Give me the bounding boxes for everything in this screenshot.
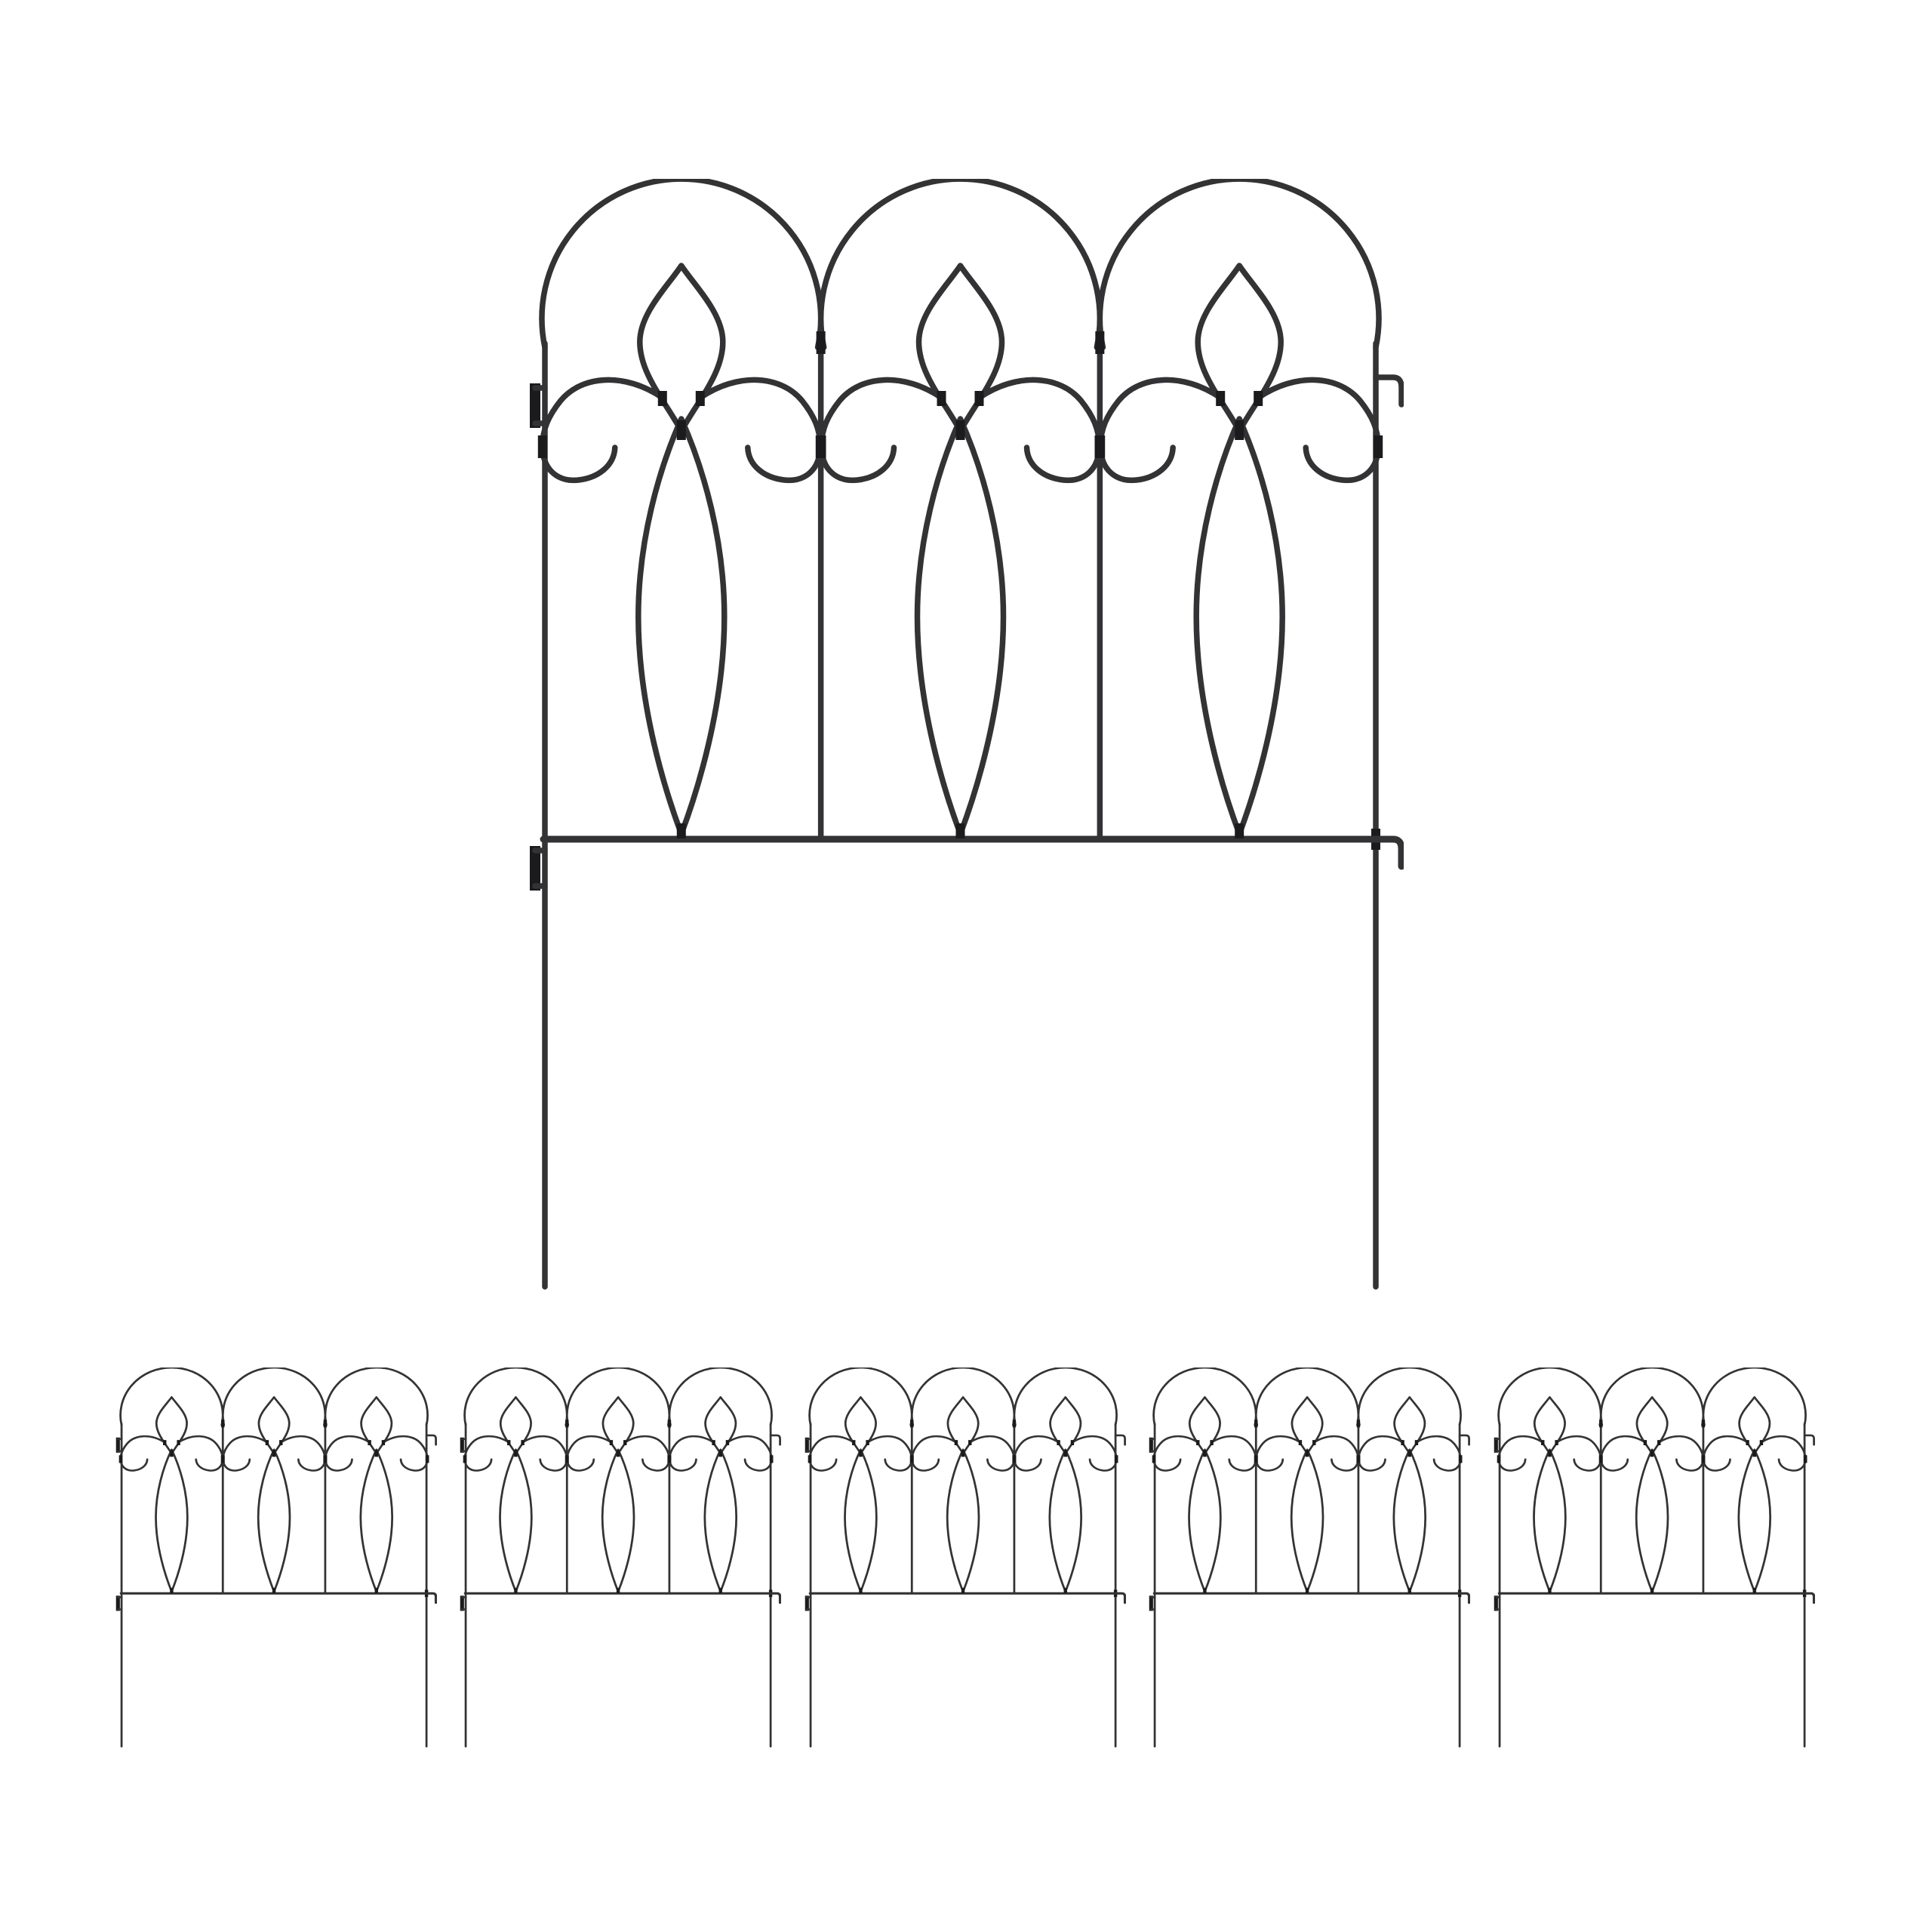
small-fence-panel bbox=[115, 1367, 437, 1749]
small-fence-panel bbox=[1494, 1367, 1815, 1749]
fence-panel-instance bbox=[1496, 1367, 1814, 1746]
small-fence-panel bbox=[804, 1367, 1126, 1749]
fence-panel-instance bbox=[535, 179, 1401, 1287]
large-fence-panel bbox=[528, 179, 1404, 1292]
fence-panel-instance bbox=[807, 1367, 1124, 1746]
small-fence-panel bbox=[460, 1367, 781, 1749]
product-image bbox=[0, 0, 1932, 1932]
small-fence-panel bbox=[1149, 1367, 1470, 1749]
fence-panel-instance bbox=[463, 1367, 780, 1746]
fence-panel-instance bbox=[1152, 1367, 1469, 1746]
fence-panel-instance bbox=[118, 1367, 435, 1746]
small-panel-row bbox=[115, 1367, 1815, 1749]
